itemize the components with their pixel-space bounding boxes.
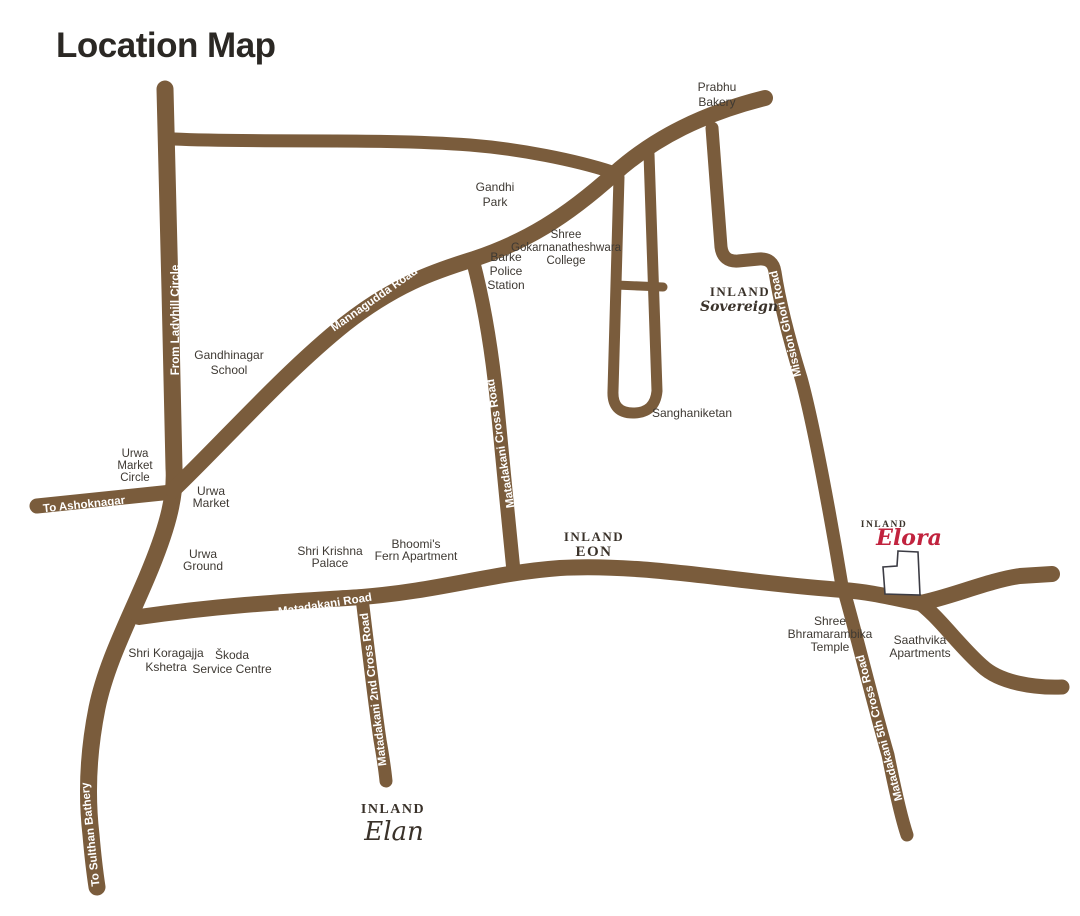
project-sovereign-name: Sovereign — [700, 299, 778, 315]
place-urwa-market-circle-line2: Market — [117, 460, 153, 472]
place-urwa-market-circle-line3: Circle — [120, 472, 149, 484]
place-gandhinagar-school-line2: School — [211, 363, 248, 377]
place-gokarnanatheshwara-college-line2: Gokarnanatheshwara — [511, 242, 622, 254]
place-barke-police-station-line2: Police — [490, 264, 523, 278]
project-eon-brand: INLAND — [564, 529, 624, 544]
project-eon-name: EON — [575, 544, 612, 560]
place-shri-koragajja-kshetra-line1: Shri Koragajja — [128, 646, 204, 660]
place-shree-bhramarambika-temple-line3: Temple — [811, 640, 850, 654]
place-gandhinagar-school-line1: Gandhinagar — [194, 348, 263, 362]
place-gokarnanatheshwara-college-line3: College — [547, 255, 586, 267]
place-shri-koragajja-kshetra-line2: Kshetra — [145, 660, 187, 674]
road-label-mission-ghori-road: Mission Ghori Road — [768, 269, 804, 378]
place-gokarnanatheshwara-college-line1: Shree — [551, 229, 582, 241]
place-saathvika-apartments-line2: Apartments — [889, 646, 950, 660]
elora-site-marker-icon — [883, 551, 920, 595]
place-shri-krishna-palace-line2: Palace — [312, 556, 349, 570]
place-urwa-market-line2: Market — [193, 496, 230, 510]
place-prabhu-bakery-line1: Prabhu — [698, 80, 737, 94]
place-shree-bhramarambika-temple-line2: Bhramarambika — [788, 627, 873, 641]
project-elora-name: Elora — [875, 525, 942, 551]
place-saathvika-apartments-line1: Saathvika — [894, 633, 947, 647]
road-label-matadakani-5th-cross-road: Matadakani 5th Cross Road — [855, 653, 906, 802]
road-label-mannagudda-road: Mannagudda Road — [329, 265, 420, 334]
project-elan-brand: INLAND — [361, 802, 425, 817]
project-sovereign-brand: INLAND — [710, 284, 770, 299]
place-barke-police-station-line1: Barke — [490, 250, 522, 264]
place-sanghaniketan: Sanghaniketan — [652, 406, 732, 420]
place-barke-police-station-line3: Station — [487, 278, 524, 292]
place-skoda-service-centre-line1: Škoda — [215, 647, 249, 662]
road-mannagudda — [173, 98, 765, 490]
place-urwa-market-circle-line1: Urwa — [122, 448, 149, 460]
road-top-link — [174, 139, 612, 172]
road-college-crossbar — [616, 285, 663, 287]
place-bhoomis-fern-apartment-line2: Fern Apartment — [375, 549, 458, 563]
location-map-page: { "title": "Location Map", "colors": { "… — [0, 0, 1080, 916]
location-map-canvas: From Ladyhill Circle Mannagudda Road To … — [0, 0, 1080, 916]
project-elan-name: Elan — [363, 817, 424, 847]
page-title: Location Map — [56, 26, 276, 65]
road-mission-ghori — [712, 128, 842, 586]
place-gandhi-park-line1: Gandhi — [476, 180, 515, 194]
place-urwa-ground-line2: Ground — [183, 559, 223, 573]
place-skoda-service-centre-line2: Service Centre — [192, 662, 272, 676]
place-gandhi-park-line2: Park — [483, 195, 509, 209]
place-shree-bhramarambika-temple-line1: Shree — [814, 614, 846, 628]
road-label-matadakani-2nd-cross-road: Matadakani 2nd Cross Road — [359, 612, 390, 766]
place-prabhu-bakery-line2: Bakery — [698, 95, 735, 109]
road-label-from-ladyhill-circle: From Ladyhill Circle — [170, 265, 182, 376]
